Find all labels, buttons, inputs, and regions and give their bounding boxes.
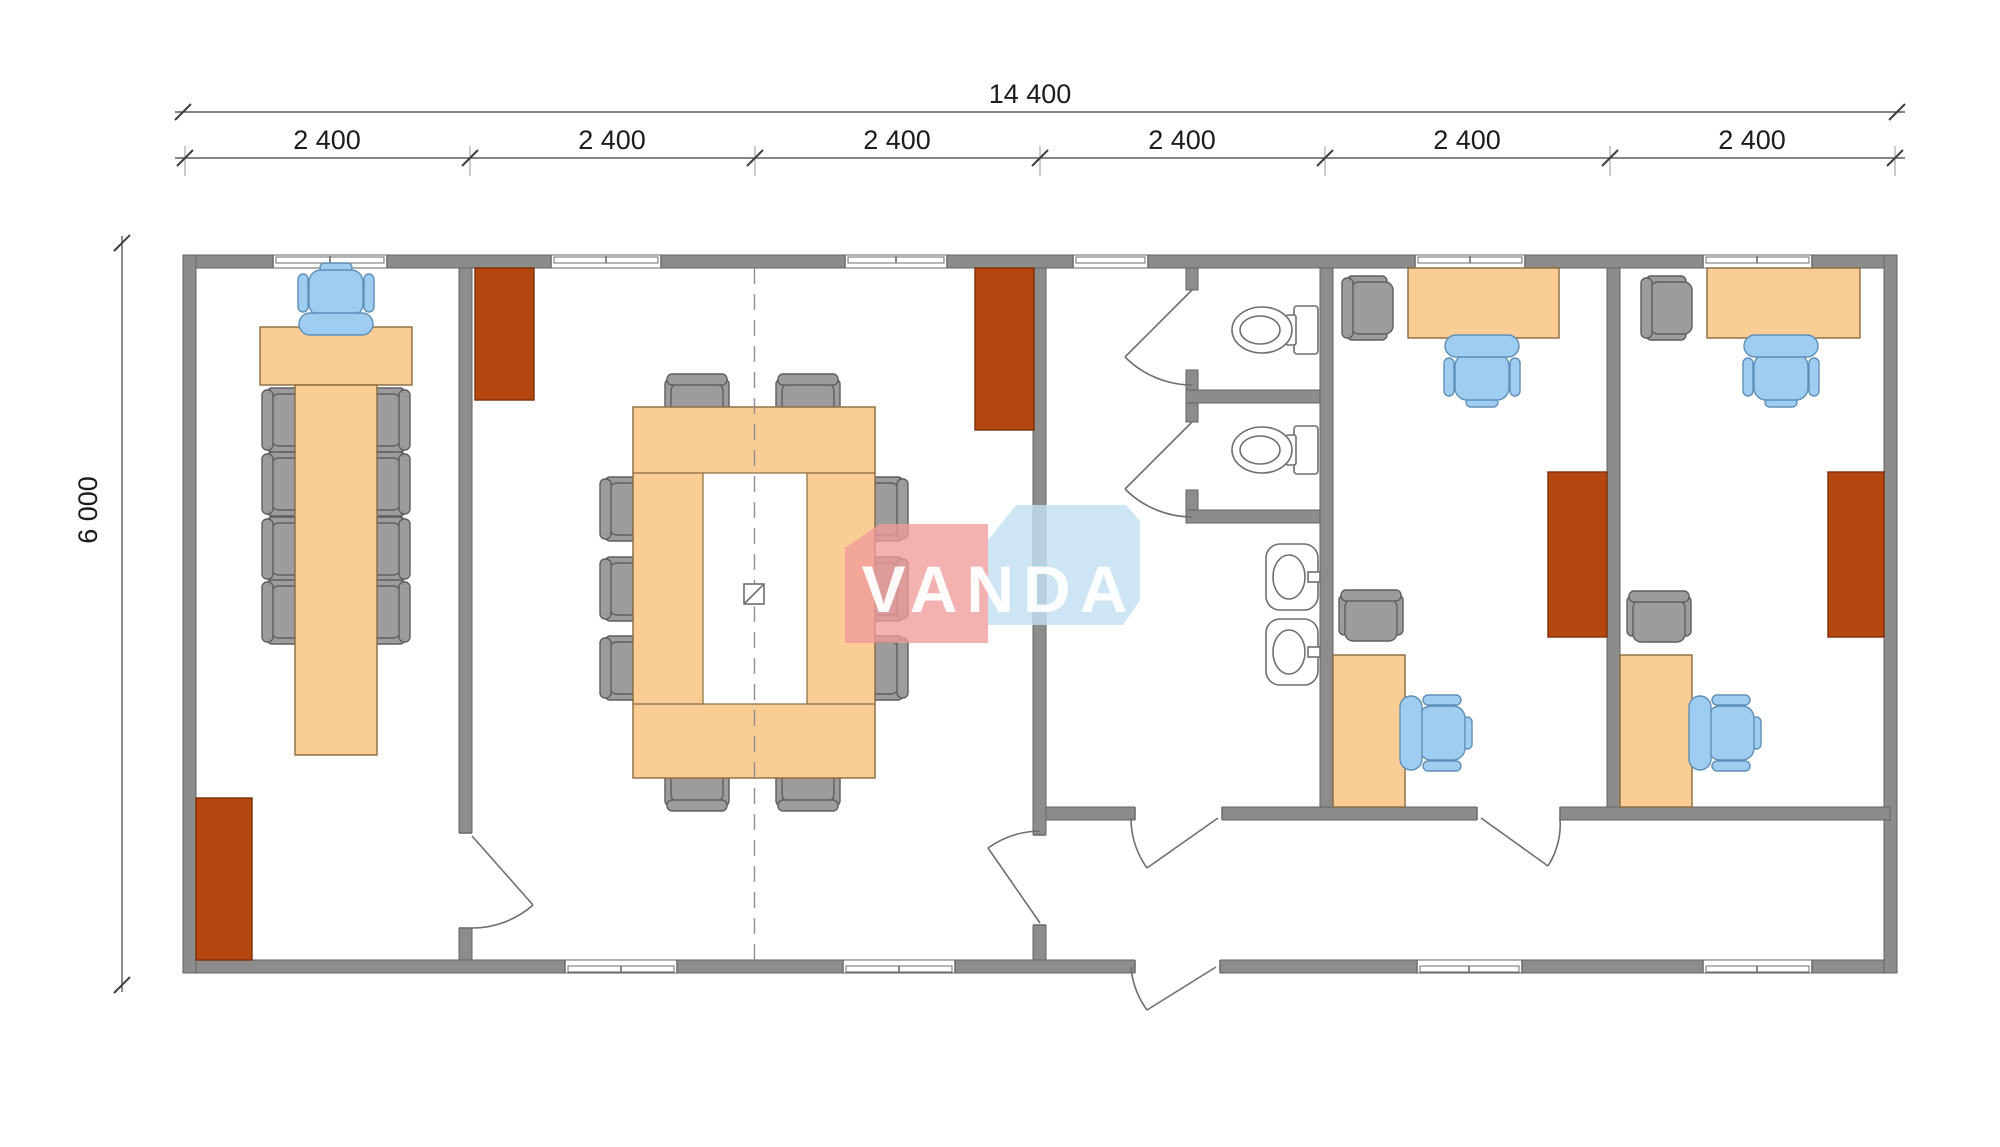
- window-top-4: [1073, 255, 1148, 268]
- door-room1-room2: [458, 833, 533, 928]
- window-top-5: [1415, 255, 1525, 268]
- room1-long-table: [295, 385, 377, 755]
- floor-plan-canvas: 14 400 2 400 2 400 2 400 2 400 2 400 2 4…: [0, 0, 2000, 1147]
- office1-desk: [1408, 268, 1559, 338]
- wall-right: [1884, 255, 1897, 973]
- floor-plan-page: 14 400 2 400 2 400 2 400 2 400 2 400 2 4…: [0, 0, 2000, 1147]
- blue-chair: [298, 263, 374, 335]
- watermark: VANDA: [845, 505, 1140, 643]
- office1-side-desk: [1333, 655, 1405, 807]
- wc-stall-divider-2: [1186, 510, 1320, 523]
- wall-room1-room2: [459, 268, 472, 833]
- dimension-module-6: 2 400: [1718, 125, 1786, 155]
- wall-wc-office1: [1320, 268, 1333, 820]
- toilet: [1232, 426, 1318, 474]
- blue-chair: [1689, 695, 1761, 771]
- window-bottom-2: [843, 960, 955, 973]
- gray-chair: [1339, 590, 1403, 641]
- toilet: [1232, 306, 1318, 354]
- door-room2-corridor: [988, 831, 1047, 925]
- room1-desk: [260, 327, 412, 385]
- wall-bottom: [183, 960, 1897, 973]
- wc-stall-stub-1: [1186, 268, 1198, 290]
- wall-left: [183, 255, 196, 973]
- wall-top: [183, 255, 1897, 268]
- washbasin: [1266, 619, 1320, 685]
- dimension-total-width: 14 400: [989, 79, 1072, 109]
- dimension-module-4: 2 400: [1148, 125, 1216, 155]
- window-bottom-1: [565, 960, 677, 973]
- blue-chair: [1444, 335, 1520, 407]
- door-wc-stall-1: [1125, 290, 1192, 385]
- door-entrance: [1131, 959, 1220, 1010]
- window-top-2: [551, 255, 661, 268]
- gray-chair: [1641, 276, 1692, 340]
- dimension-module-3: 2 400: [863, 125, 931, 155]
- watermark-text: VANDA: [862, 552, 1137, 626]
- wc-stall-divider-1: [1186, 390, 1320, 403]
- window-top-3: [845, 255, 947, 268]
- office2-side-desk: [1620, 655, 1692, 807]
- window-bottom-3: [1417, 960, 1522, 973]
- radiator-room1: [196, 798, 252, 960]
- washbasin: [1266, 544, 1320, 610]
- gray-chair: [1342, 276, 1393, 340]
- wall-office1-office2: [1607, 268, 1620, 820]
- door-corridor-office1: [1477, 806, 1560, 866]
- dimension-height: 6 000: [73, 476, 103, 544]
- sanitary-fixtures: [1232, 306, 1320, 685]
- radiator-office2: [1828, 472, 1884, 637]
- dimension-module-1: 2 400: [293, 125, 361, 155]
- radiator-room2-left: [475, 268, 534, 400]
- wall-room1-room2-stub: [459, 928, 472, 960]
- window-bottom-4: [1703, 960, 1812, 973]
- radiator-office1: [1548, 472, 1607, 637]
- gray-chair: [1627, 591, 1691, 642]
- dimension-module-2: 2 400: [578, 125, 646, 155]
- blue-chair: [1400, 695, 1472, 771]
- door-corridor-wc: [1131, 806, 1222, 868]
- dimension-module-5: 2 400: [1433, 125, 1501, 155]
- radiator-room2-right: [975, 268, 1034, 430]
- office2-desk: [1707, 268, 1860, 338]
- door-wc-stall-2: [1125, 422, 1192, 517]
- blue-chair: [1743, 335, 1819, 407]
- module-ticks: [177, 146, 1903, 176]
- window-top-6: [1703, 255, 1812, 268]
- wall-room2-corridor-stub: [1033, 925, 1046, 960]
